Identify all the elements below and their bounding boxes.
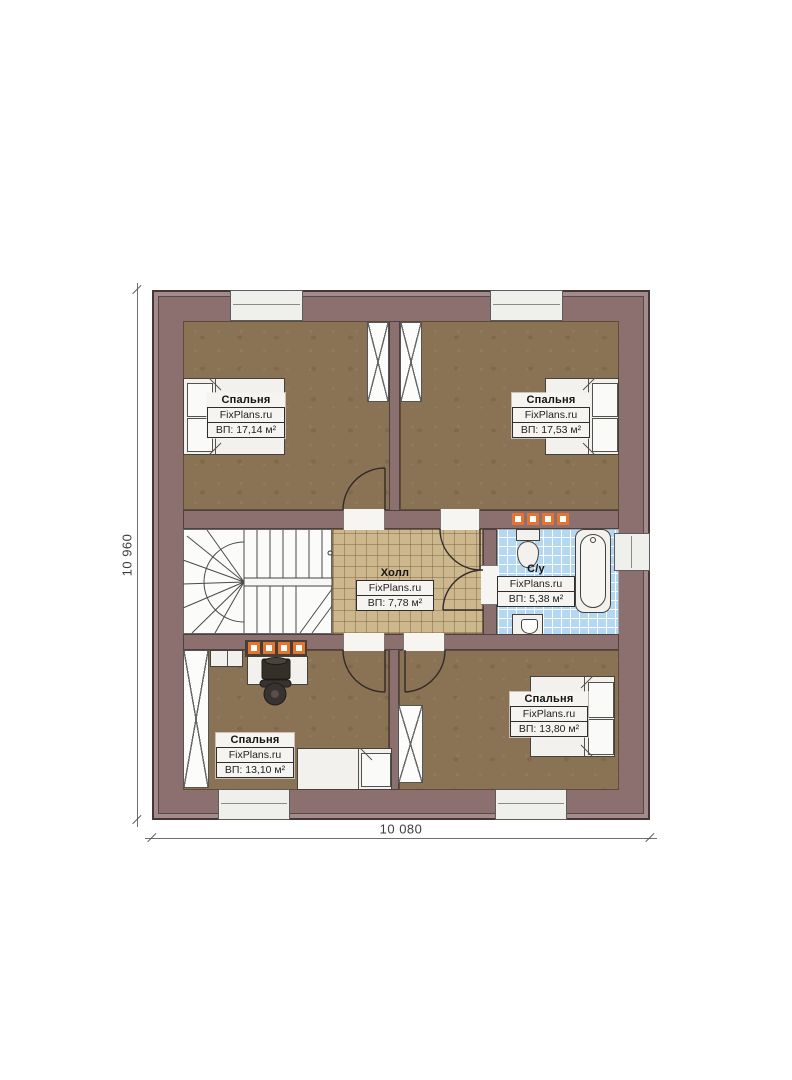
room-name: Холл xyxy=(356,566,434,580)
window-bathroom-right xyxy=(614,533,650,571)
room-label-bedroom-top-left: Спальня FixPlans.ru ВП: 17,14 м² xyxy=(207,393,285,438)
dimension-label-width: 10 080 xyxy=(380,822,423,837)
desk xyxy=(247,656,308,685)
vent-shaft-bottom xyxy=(398,705,423,783)
staircase-area xyxy=(183,529,332,634)
toilet-tank xyxy=(516,529,540,541)
bathtub-icon xyxy=(575,529,611,613)
vent-block-icon xyxy=(557,513,569,525)
vent-block-icon xyxy=(278,642,290,654)
room-area: ВП: 17,53 м² xyxy=(512,423,590,438)
brand-watermark: FixPlans.ru xyxy=(207,407,285,423)
room-label-bedroom-bottom-right: Спальня FixPlans.ru ВП: 13,80 м² xyxy=(510,692,588,737)
door-opening-bedroom-top-right xyxy=(440,509,480,530)
vent-block-icon xyxy=(248,642,260,654)
room-label-bathroom: С/у FixPlans.ru ВП: 5,38 м² xyxy=(497,562,575,607)
brand-watermark: FixPlans.ru xyxy=(510,706,588,722)
wardrobe xyxy=(183,650,209,788)
bed-bottom-left xyxy=(297,748,392,790)
door-opening-bathroom xyxy=(481,565,498,605)
room-area: ВП: 17,14 м² xyxy=(207,423,285,438)
vent-block-icon xyxy=(512,513,524,525)
vent-shaft-top-right xyxy=(400,322,422,402)
window-bottom-right xyxy=(495,789,567,820)
dimension-line-bottom xyxy=(145,838,657,839)
room-label-hall: Холл FixPlans.ru ВП: 7,78 м² xyxy=(356,566,434,611)
door-opening-bedroom-bottom-left xyxy=(343,633,385,651)
door-opening-bedroom-bottom-right xyxy=(403,633,445,651)
vent-block-icon xyxy=(542,513,554,525)
room-area: ВП: 7,78 м² xyxy=(356,596,434,611)
vent-block-icon xyxy=(293,642,305,654)
room-area: ВП: 5,38 м² xyxy=(497,592,575,607)
vent-block-icon xyxy=(263,642,275,654)
brand-watermark: FixPlans.ru xyxy=(216,747,294,763)
floor-plan: Спальня FixPlans.ru ВП: 17,14 м² Спальня… xyxy=(152,290,650,820)
window-bottom-left xyxy=(218,789,290,820)
dimension-label-height: 10 960 xyxy=(120,534,135,577)
vent-block-icon xyxy=(527,513,539,525)
room-label-bedroom-bottom-left: Спальня FixPlans.ru ВП: 13,10 м² xyxy=(216,733,294,778)
dimension-line-left xyxy=(137,283,138,827)
brand-watermark: FixPlans.ru xyxy=(497,576,575,592)
room-name: Спальня xyxy=(510,692,588,706)
room-name: Спальня xyxy=(512,393,590,407)
door-opening-bedroom-top-left xyxy=(343,509,385,530)
window-top-right xyxy=(490,290,563,321)
room-name: Спальня xyxy=(216,733,294,747)
shelf-cabinet xyxy=(210,650,243,667)
brand-watermark: FixPlans.ru xyxy=(356,580,434,596)
room-name: С/у xyxy=(497,562,575,576)
room-area: ВП: 13,10 м² xyxy=(216,763,294,778)
brand-watermark: FixPlans.ru xyxy=(512,407,590,423)
vent-shaft-top-left xyxy=(367,322,389,402)
sink-icon xyxy=(512,614,543,635)
window-top-left xyxy=(230,290,303,321)
room-name: Спальня xyxy=(207,393,285,407)
floor-plan-page: { "brand": "FixPlans.ru", "dimensions": … xyxy=(0,0,792,1080)
room-area: ВП: 13,80 м² xyxy=(510,722,588,737)
room-label-bedroom-top-right: Спальня FixPlans.ru ВП: 17,53 м² xyxy=(512,393,590,438)
wall-partition-top-bedrooms xyxy=(389,321,400,511)
